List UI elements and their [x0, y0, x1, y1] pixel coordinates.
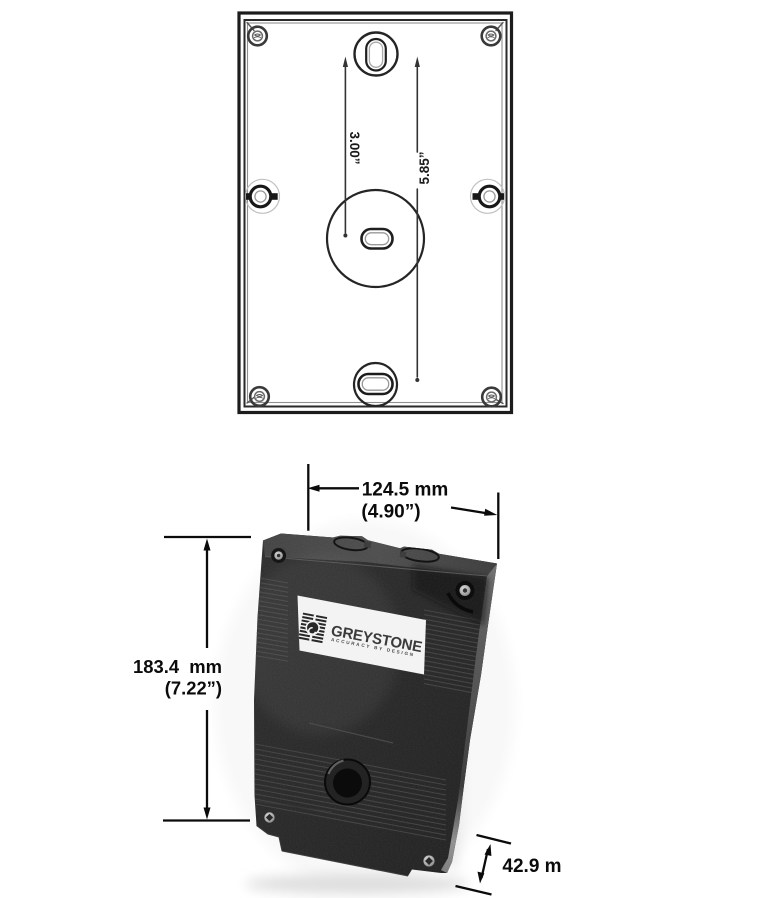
svg-text:5.85”: 5.85” — [417, 151, 432, 184]
svg-text:183.4 mm: 183.4 mm — [133, 656, 222, 677]
svg-text:124.5 mm: 124.5 mm — [362, 480, 449, 501]
svg-text:3.00”: 3.00” — [347, 132, 362, 165]
svg-text:42.9 m: 42.9 m — [502, 856, 561, 877]
svg-text:(7.22”): (7.22”) — [165, 678, 222, 699]
svg-text:(4.90”): (4.90”) — [361, 502, 420, 523]
